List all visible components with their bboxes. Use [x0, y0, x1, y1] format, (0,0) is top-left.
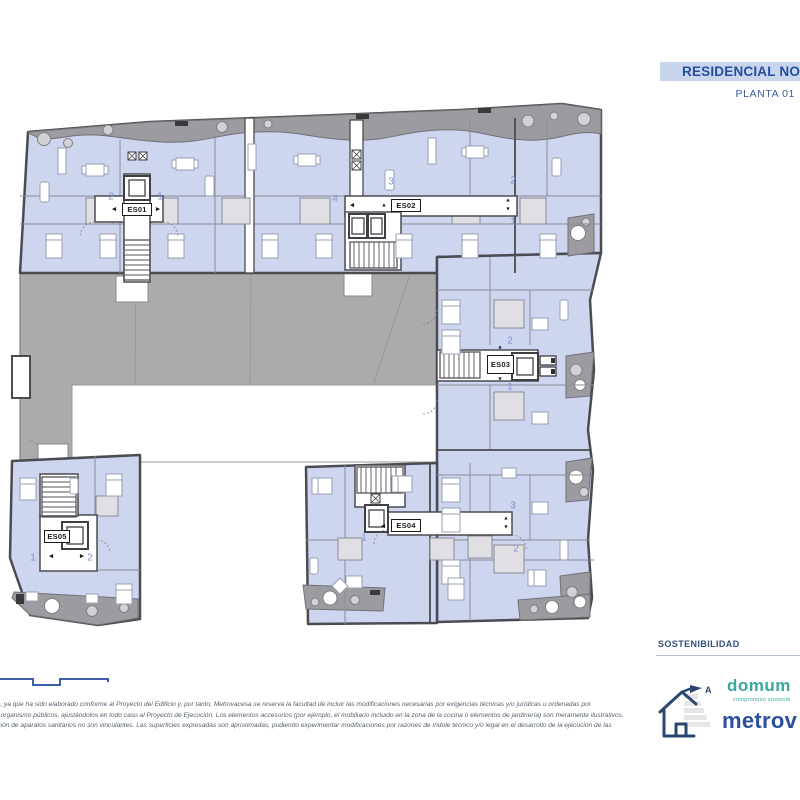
project-title-banner: RESIDENCIAL NOVA	[660, 62, 800, 81]
divider-line	[656, 655, 800, 656]
down-arrow-icon: ▼	[497, 377, 502, 383]
stair-core-label-es05: ES05	[44, 530, 70, 543]
unit-number: 2	[510, 176, 516, 187]
left-arrow-icon: ◀	[350, 203, 354, 209]
unit-number: 3	[510, 501, 516, 512]
up-arrow-icon: ▲	[497, 345, 502, 351]
left-arrow-icon: ◀	[381, 524, 385, 530]
sustainability-heading: SOSTENIBILIDAD	[658, 639, 740, 649]
up-arrow-icon: ▲	[503, 516, 508, 522]
brand-domum-logo: domum	[727, 676, 791, 696]
stair-core-label-es04: ES04	[391, 519, 421, 532]
unit-number: 2	[108, 192, 114, 203]
unit-number: 2	[507, 336, 513, 347]
stair-core-label-es01: ES01	[122, 203, 152, 216]
floor-label: PLANTA 01	[736, 88, 795, 100]
stair-core-label-es02: ES02	[391, 199, 421, 212]
down-arrow-icon: ▼	[505, 207, 510, 213]
floor-plan-sheet: ES01◀▶ES02◀▲▲▼ES03▲▼ES04◀▲▼ES05◀▶2143212…	[0, 0, 800, 800]
unit-number: 1	[30, 553, 36, 564]
right-arrow-icon: ▶	[80, 554, 84, 560]
right-arrow-icon: ▶	[156, 207, 160, 213]
unit-number: 2	[87, 553, 93, 564]
down-arrow-icon: ▼	[503, 525, 508, 531]
disclaimer-line: bución de aparatos sanitarios no son vin…	[0, 721, 690, 732]
unit-number: 3	[388, 177, 394, 188]
up-arrow-icon: ▲	[381, 203, 386, 209]
disclaimer-line: tivo, ya que ha sido elaborado conforme …	[0, 700, 690, 711]
brand-domum-tagline: compromiso sostenib	[733, 697, 791, 703]
left-arrow-icon: ◀	[112, 207, 116, 213]
key-plan-outline	[0, 672, 120, 688]
unit-number: 1	[361, 533, 367, 544]
stair-core-label-es03: ES03	[487, 355, 514, 374]
left-arrow-icon: ◀	[49, 554, 53, 560]
legal-disclaimer: tivo, ya que ha sido elaborado conforme …	[0, 700, 690, 732]
energy-rating-letter: A	[705, 685, 712, 695]
brand-metrovacesa-logo: metrov	[722, 708, 797, 734]
unit-number: 1	[507, 382, 513, 393]
up-arrow-icon: ▲	[505, 198, 510, 204]
project-title: RESIDENCIAL NOVA	[660, 62, 800, 81]
unit-number: 1	[510, 217, 516, 228]
unit-number: 2	[513, 544, 519, 555]
unit-number: 4	[332, 194, 338, 205]
disclaimer-line: s u organismo públicos, ajustándolos en …	[0, 711, 690, 722]
unit-number: 1	[157, 192, 163, 203]
